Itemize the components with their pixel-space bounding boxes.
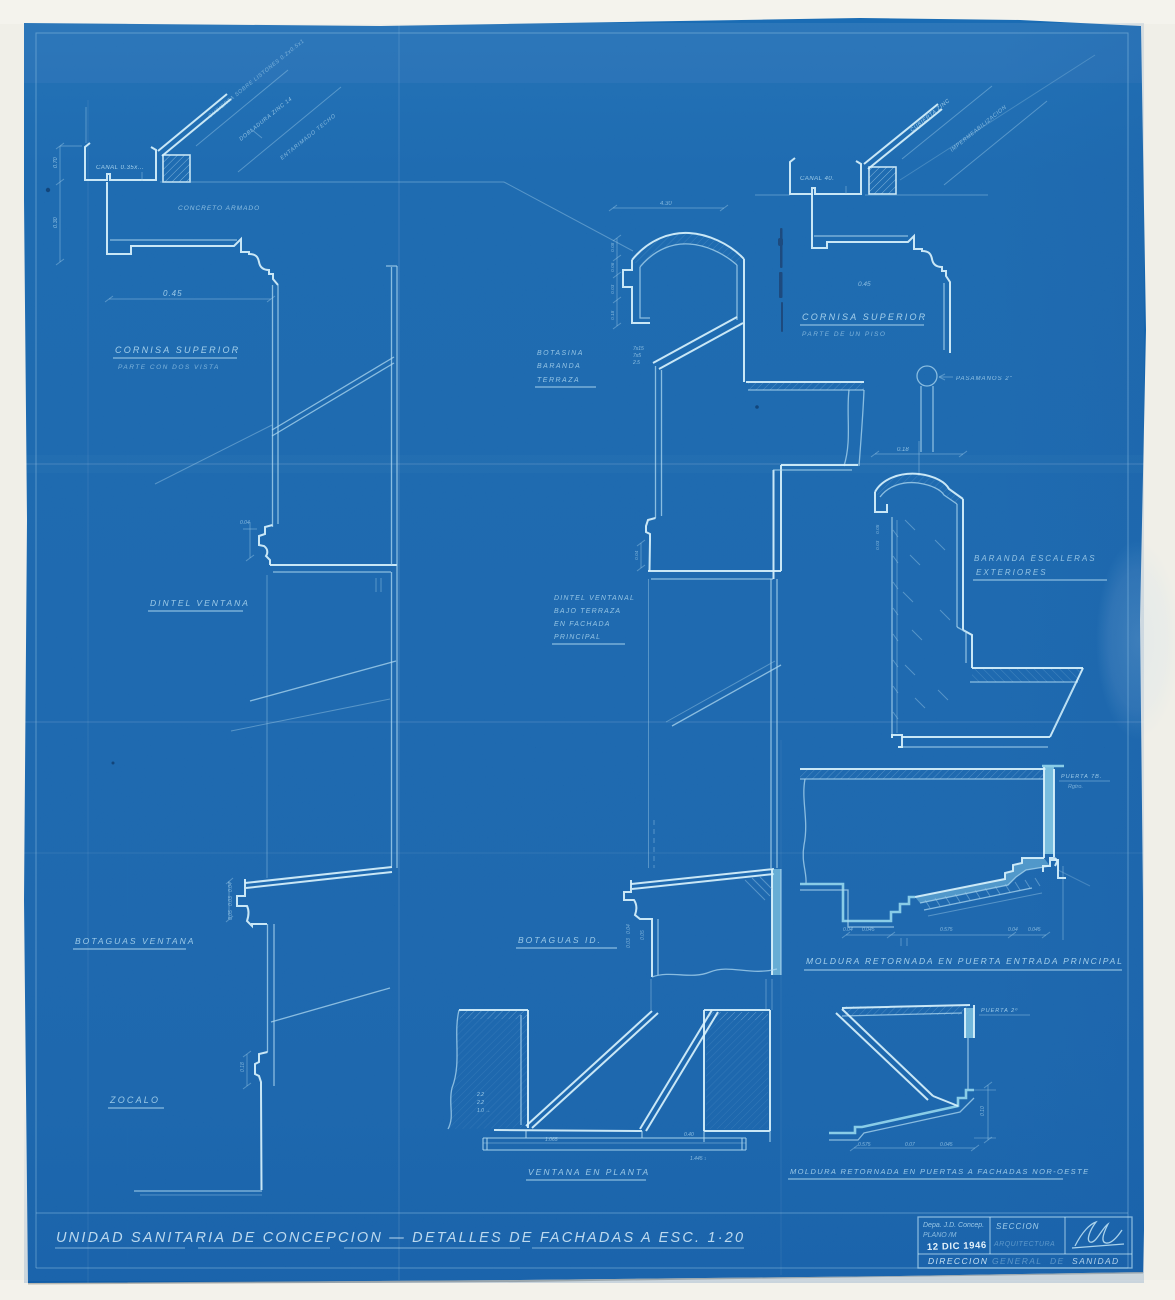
svg-text:ARQUITECTURA: ARQUITECTURA <box>993 1241 1055 1248</box>
svg-text:BAJO TERRAZA: BAJO TERRAZA <box>554 608 621 615</box>
svg-text:VENTANA EN PLANTA: VENTANA EN PLANTA <box>528 1167 650 1177</box>
svg-text:MOLDURA RETORNADA EN PUERTA: MOLDURA RETORNADA EN PUERTAS A FACHADAS … <box>790 1167 1089 1176</box>
svg-text:PASAMANOS 2": PASAMANOS 2" <box>956 376 1013 382</box>
svg-text:0.04: 0.04 <box>626 924 632 934</box>
svg-text:0.45: 0.45 <box>858 281 871 288</box>
svg-text:UNIDAD SANITARIA DE CONCEPC: UNIDAD SANITARIA DE CONCEPCION — DETALLE… <box>56 1230 745 1246</box>
svg-text:MOLDURA RETORNADA EN PUERTA: MOLDURA RETORNADA EN PUERTA ENTRADA PRIN… <box>806 956 1124 966</box>
svg-text:PLANO /M: PLANO /M <box>923 1232 957 1239</box>
svg-text:0.05: 0.05 <box>875 524 881 534</box>
svg-text:0.045: 0.045 <box>1028 927 1041 933</box>
svg-text:CANAL 0.35x...: CANAL 0.35x... <box>96 165 144 171</box>
svg-text:0.575: 0.575 <box>940 927 953 933</box>
svg-text:0.10: 0.10 <box>980 1106 986 1116</box>
svg-text:0.45: 0.45 <box>163 289 183 298</box>
svg-text:0.04: 0.04 <box>843 927 853 933</box>
svg-text:0.575: 0.575 <box>858 1142 871 1148</box>
svg-text:Rgtro.: Rgtro. <box>1068 784 1083 790</box>
svg-text:2.2: 2.2 <box>476 1100 484 1106</box>
svg-text:0.70: 0.70 <box>53 156 59 168</box>
svg-text:0.04: 0.04 <box>240 520 250 526</box>
svg-text:0.30: 0.30 <box>53 216 59 228</box>
svg-text:PUERTA 7B.: PUERTA 7B. <box>1061 774 1102 780</box>
svg-text:0.03: 0.03 <box>610 284 616 294</box>
svg-text:CORNISA SUPERIOR: CORNISA SUPERIOR <box>115 345 240 355</box>
svg-text:0.18: 0.18 <box>897 447 909 453</box>
svg-text:PRINCIPAL: PRINCIPAL <box>554 634 601 641</box>
svg-text:0.03: 0.03 <box>875 540 881 550</box>
svg-text:DIRECCION: DIRECCION <box>928 1256 988 1266</box>
svg-text:0.04: 0.04 <box>1008 927 1018 933</box>
svg-text:CORNISA SUPERIOR: CORNISA SUPERIOR <box>802 312 927 322</box>
svg-text:BARANDA: BARANDA <box>537 363 581 370</box>
svg-text:EN FACHADA: EN FACHADA <box>554 621 611 628</box>
svg-text:CONCRETO ARMADO: CONCRETO ARMADO <box>178 205 260 212</box>
svg-text:0.03: 0.03 <box>626 938 632 948</box>
svg-text:1.065: 1.065 <box>545 1137 558 1143</box>
svg-text:2.5: 2.5 <box>632 360 640 366</box>
svg-text:ZOCALO: ZOCALO <box>109 1095 160 1105</box>
svg-text:0.07: 0.07 <box>905 1142 915 1148</box>
svg-text:0.05: 0.05 <box>640 930 646 940</box>
svg-text:BOTASINA: BOTASINA <box>537 350 584 357</box>
svg-text:0.045: 0.045 <box>940 1142 953 1148</box>
svg-text:Depa. J.D. Concep.: Depa. J.D. Concep. <box>923 1222 984 1229</box>
svg-text:0.04: 0.04 <box>634 550 640 560</box>
svg-text:2.2: 2.2 <box>476 1092 484 1098</box>
svg-text:EXTERIORES: EXTERIORES <box>976 568 1048 577</box>
svg-text:4.30: 4.30 <box>660 201 672 207</box>
svg-text:DINTEL VENTANA: DINTEL VENTANA <box>150 598 250 608</box>
svg-text:BOTAGUAS ID.: BOTAGUAS ID. <box>518 935 602 945</box>
svg-text:1.0 →: 1.0 → <box>477 1108 490 1114</box>
svg-text:SANIDAD: SANIDAD <box>1072 1256 1120 1266</box>
svg-text:CANAL 40.: CANAL 40. <box>800 176 834 182</box>
svg-text:TERRAZA: TERRAZA <box>537 377 580 384</box>
svg-text:DINTEL VENTANAL: DINTEL VENTANAL <box>554 595 635 602</box>
svg-text:1.445 ↕: 1.445 ↕ <box>690 1156 706 1162</box>
svg-text:0.18: 0.18 <box>240 1062 246 1072</box>
svg-text:PARTE CON DOS VISTA: PARTE CON DOS VISTA <box>118 364 220 371</box>
svg-text:0.08: 0.08 <box>610 242 616 252</box>
svg-text:0.06: 0.06 <box>610 262 616 272</box>
svg-text:PARTE DE UN PISO: PARTE DE UN PISO <box>802 331 886 338</box>
svg-text:7x15: 7x15 <box>633 346 644 352</box>
svg-text:GENERAL DE: GENERAL DE <box>992 1256 1065 1266</box>
svg-text:PUERTA 2º: PUERTA 2º <box>981 1007 1018 1014</box>
svg-text:0.18: 0.18 <box>610 310 616 320</box>
svg-text:0.40: 0.40 <box>684 1132 694 1138</box>
svg-text:BARANDA ESCALERAS: BARANDA ESCALERAS <box>974 554 1097 563</box>
svg-text:SECCION: SECCION <box>996 1222 1039 1231</box>
svg-text:12 DIC 1946: 12 DIC 1946 <box>927 1240 987 1253</box>
svg-text:BOTAGUAS VENTANA: BOTAGUAS VENTANA <box>75 936 195 946</box>
svg-text:7x5: 7x5 <box>633 353 641 359</box>
svg-text:0.045: 0.045 <box>862 927 875 933</box>
